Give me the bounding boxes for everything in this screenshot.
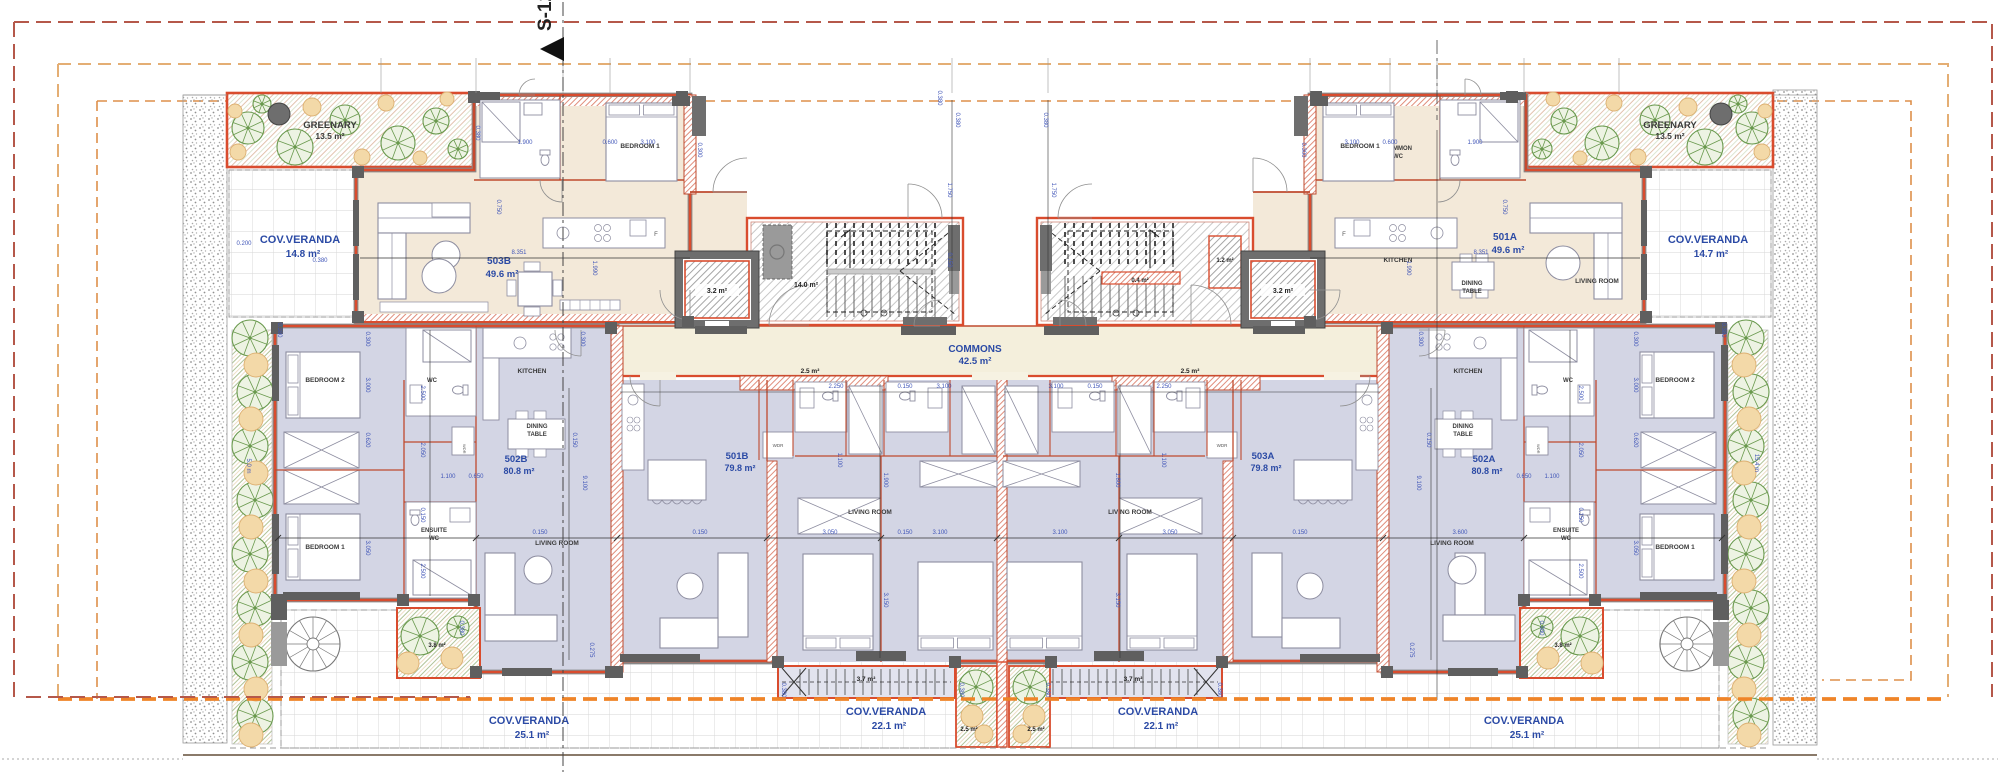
svg-text:1.900: 1.900 bbox=[1467, 140, 1483, 146]
svg-text:8.351: 8.351 bbox=[511, 250, 527, 256]
svg-text:2.500: 2.500 bbox=[1577, 563, 1583, 579]
svg-text:0.620: 0.620 bbox=[364, 432, 370, 448]
svg-text:80.8 m²: 80.8 m² bbox=[503, 466, 534, 476]
svg-text:0.380: 0.380 bbox=[1042, 112, 1048, 128]
svg-text:1.750: 1.750 bbox=[1050, 182, 1056, 198]
svg-text:1.2 m²: 1.2 m² bbox=[1216, 257, 1233, 264]
svg-text:0.380: 0.380 bbox=[1216, 682, 1222, 698]
svg-text:2.5 m²: 2.5 m² bbox=[960, 726, 977, 733]
svg-text:0.300: 0.300 bbox=[579, 331, 585, 347]
svg-text:0.600: 0.600 bbox=[1382, 140, 1398, 146]
svg-text:LIVING ROOM: LIVING ROOM bbox=[848, 509, 892, 516]
svg-text:0.300: 0.300 bbox=[1632, 331, 1638, 347]
svg-text:0.150: 0.150 bbox=[419, 507, 425, 523]
svg-text:0.150: 0.150 bbox=[1087, 384, 1103, 390]
svg-text:0.380: 0.380 bbox=[276, 322, 282, 338]
svg-text:2.050: 2.050 bbox=[419, 442, 425, 458]
svg-text:COV.VERANDA: COV.VERANDA bbox=[489, 715, 569, 727]
svg-text:COV.VERANDA: COV.VERANDA bbox=[1484, 715, 1564, 727]
svg-text:0.150: 0.150 bbox=[1577, 507, 1583, 523]
svg-text:0.150: 0.150 bbox=[571, 432, 577, 448]
svg-text:3.050: 3.050 bbox=[822, 530, 838, 536]
svg-text:COV.VERANDA: COV.VERANDA bbox=[1668, 234, 1748, 246]
svg-text:2.050: 2.050 bbox=[1577, 442, 1583, 458]
svg-text:22.1 m²: 22.1 m² bbox=[1144, 721, 1179, 732]
svg-text:501B: 501B bbox=[726, 451, 749, 462]
svg-text:ENSUITE: ENSUITE bbox=[1553, 528, 1579, 534]
svg-text:79.8 m²: 79.8 m² bbox=[1250, 463, 1281, 473]
svg-text:15.4 m: 15.4 m bbox=[1753, 454, 1759, 472]
svg-text:WDR: WDR bbox=[773, 443, 784, 448]
svg-text:0.380: 0.380 bbox=[1044, 682, 1050, 698]
svg-text:0.300: 0.300 bbox=[364, 331, 370, 347]
svg-text:13.5 m²: 13.5 m² bbox=[1655, 131, 1684, 141]
svg-text:KITCHEN: KITCHEN bbox=[518, 368, 547, 375]
svg-text:0.750: 0.750 bbox=[1501, 199, 1507, 215]
svg-text:2.250: 2.250 bbox=[1156, 384, 1172, 390]
svg-text:BEDROOM 2: BEDROOM 2 bbox=[1655, 377, 1695, 384]
svg-text:COV.VERANDA: COV.VERANDA bbox=[846, 706, 926, 718]
svg-text:1.100: 1.100 bbox=[1544, 474, 1560, 480]
svg-text:0.650: 0.650 bbox=[468, 474, 484, 480]
svg-text:3.150: 3.150 bbox=[882, 592, 888, 608]
svg-text:1.900: 1.900 bbox=[882, 472, 888, 488]
svg-text:WC: WC bbox=[429, 536, 440, 542]
svg-text:GREENARY: GREENARY bbox=[1643, 120, 1697, 131]
svg-text:WC: WC bbox=[1563, 378, 1574, 384]
svg-text:TABLE: TABLE bbox=[527, 432, 547, 438]
svg-text:3.050: 3.050 bbox=[1632, 540, 1638, 556]
svg-text:WDR: WDR bbox=[1217, 443, 1228, 448]
svg-text:2.5 m²: 2.5 m² bbox=[801, 368, 821, 375]
svg-text:0.300: 0.300 bbox=[1300, 142, 1306, 158]
svg-text:14.7 m²: 14.7 m² bbox=[1694, 249, 1729, 260]
svg-text:WDR: WDR bbox=[462, 444, 467, 454]
svg-text:1.100: 1.100 bbox=[836, 452, 842, 468]
svg-text:LIVING ROOM: LIVING ROOM bbox=[1108, 509, 1152, 516]
svg-text:0.300: 0.300 bbox=[1417, 331, 1423, 347]
svg-text:9.100: 9.100 bbox=[581, 475, 587, 491]
svg-text:80.8 m²: 80.8 m² bbox=[1471, 466, 1502, 476]
svg-text:COV.VERANDA: COV.VERANDA bbox=[1118, 706, 1198, 718]
svg-text:3.100: 3.100 bbox=[640, 140, 656, 146]
svg-text:25.1 m²: 25.1 m² bbox=[1510, 730, 1545, 741]
svg-text:2.5 m²: 2.5 m² bbox=[1027, 726, 1044, 733]
svg-text:DINING: DINING bbox=[527, 424, 548, 430]
svg-text:3.2 m²: 3.2 m² bbox=[1273, 288, 1294, 295]
svg-text:3.100: 3.100 bbox=[936, 384, 952, 390]
svg-text:1.100: 1.100 bbox=[440, 474, 456, 480]
svg-text:0.380: 0.380 bbox=[958, 682, 964, 698]
svg-text:DINING: DINING bbox=[1453, 424, 1474, 430]
svg-text:0.275: 0.275 bbox=[1408, 642, 1414, 658]
svg-text:F: F bbox=[654, 232, 658, 238]
svg-text:0.380: 0.380 bbox=[1538, 620, 1544, 636]
svg-text:0.380: 0.380 bbox=[1720, 322, 1726, 338]
svg-text:3.7 m²: 3.7 m² bbox=[1124, 676, 1144, 683]
svg-text:3.100: 3.100 bbox=[932, 530, 948, 536]
svg-text:LIVING ROOM: LIVING ROOM bbox=[535, 540, 579, 547]
svg-text:0.380: 0.380 bbox=[936, 90, 942, 106]
svg-text:8.351: 8.351 bbox=[1473, 250, 1489, 256]
svg-text:503A: 503A bbox=[1252, 451, 1275, 462]
svg-text:2.250: 2.250 bbox=[828, 384, 844, 390]
svg-text:3.100: 3.100 bbox=[1048, 384, 1064, 390]
svg-text:1.990: 1.990 bbox=[1405, 260, 1411, 276]
svg-text:0.150: 0.150 bbox=[946, 252, 952, 268]
svg-text:1.990: 1.990 bbox=[591, 260, 597, 276]
svg-text:3.600: 3.600 bbox=[1452, 530, 1468, 536]
svg-text:3.000: 3.000 bbox=[1632, 377, 1638, 393]
svg-text:13.5 m²: 13.5 m² bbox=[315, 131, 344, 141]
svg-text:22.1 m²: 22.1 m² bbox=[872, 721, 907, 732]
svg-text:2.5 m²: 2.5 m² bbox=[1181, 368, 1201, 375]
svg-text:F: F bbox=[1342, 232, 1346, 238]
svg-text:0.380: 0.380 bbox=[458, 620, 464, 636]
svg-text:3.050: 3.050 bbox=[364, 540, 370, 556]
svg-text:3.050: 3.050 bbox=[1162, 530, 1178, 536]
svg-text:BEDROOM 1: BEDROOM 1 bbox=[1655, 544, 1695, 551]
svg-text:79.8 m²: 79.8 m² bbox=[724, 463, 755, 473]
svg-text:3.8 m²: 3.8 m² bbox=[428, 642, 445, 649]
svg-text:3.8 m²: 3.8 m² bbox=[1554, 642, 1571, 649]
svg-text:KITCHEN: KITCHEN bbox=[1454, 368, 1483, 375]
svg-text:9.100: 9.100 bbox=[1415, 475, 1421, 491]
svg-text:BEDROOM 2: BEDROOM 2 bbox=[305, 377, 345, 384]
svg-text:2.500: 2.500 bbox=[419, 563, 425, 579]
svg-text:502B: 502B bbox=[505, 454, 528, 465]
svg-text:3.150: 3.150 bbox=[1114, 592, 1120, 608]
svg-text:0.750: 0.750 bbox=[495, 199, 501, 215]
svg-text:LIVING ROOM: LIVING ROOM bbox=[1575, 278, 1619, 285]
svg-text:42.5 m²: 42.5 m² bbox=[959, 356, 992, 367]
svg-text:1.750: 1.750 bbox=[946, 182, 952, 198]
svg-text:0.380: 0.380 bbox=[954, 112, 960, 128]
svg-text:1.800: 1.800 bbox=[1114, 472, 1120, 488]
svg-text:0.620: 0.620 bbox=[1632, 432, 1638, 448]
svg-text:49.6 m²: 49.6 m² bbox=[486, 269, 519, 280]
svg-text:1.100: 1.100 bbox=[1160, 452, 1166, 468]
svg-text:0.380: 0.380 bbox=[474, 125, 480, 141]
svg-text:WDR: WDR bbox=[1536, 444, 1541, 454]
svg-text:2.500: 2.500 bbox=[419, 385, 425, 401]
svg-text:COMMONS: COMMONS bbox=[948, 344, 1002, 355]
svg-text:GREENARY: GREENARY bbox=[303, 120, 357, 131]
svg-text:0.150: 0.150 bbox=[897, 530, 913, 536]
svg-text:3.100: 3.100 bbox=[1344, 140, 1360, 146]
svg-text:0.150: 0.150 bbox=[1425, 432, 1431, 448]
svg-text:0.150: 0.150 bbox=[1292, 530, 1308, 536]
svg-text:0.380: 0.380 bbox=[312, 258, 328, 264]
svg-text:3.2 m²: 3.2 m² bbox=[707, 288, 728, 295]
svg-text:0.650: 0.650 bbox=[1516, 474, 1532, 480]
svg-text:COV.VERANDA: COV.VERANDA bbox=[260, 234, 340, 246]
svg-text:5.0 m: 5.0 m bbox=[245, 458, 251, 473]
svg-text:WC: WC bbox=[427, 378, 438, 384]
svg-text:3.000: 3.000 bbox=[364, 377, 370, 393]
svg-text:0.150: 0.150 bbox=[897, 384, 913, 390]
svg-text:DINING: DINING bbox=[1462, 281, 1483, 287]
svg-text:0.150: 0.150 bbox=[532, 530, 548, 536]
svg-text:BEDROOM 1: BEDROOM 1 bbox=[305, 544, 345, 551]
svg-text:0.275: 0.275 bbox=[588, 642, 594, 658]
svg-text:TABLE: TABLE bbox=[1462, 289, 1482, 295]
svg-text:ENSUITE: ENSUITE bbox=[421, 528, 447, 534]
svg-text:3.7 m²: 3.7 m² bbox=[857, 676, 877, 683]
svg-text:0.200: 0.200 bbox=[236, 241, 252, 247]
svg-text:14.0 m²: 14.0 m² bbox=[794, 282, 819, 289]
svg-text:25.1 m²: 25.1 m² bbox=[515, 730, 550, 741]
svg-text:0.4 m²: 0.4 m² bbox=[1131, 277, 1148, 284]
svg-text:0.380: 0.380 bbox=[780, 682, 786, 698]
svg-text:1.900: 1.900 bbox=[517, 140, 533, 146]
svg-text:S-12: S-12 bbox=[535, 0, 556, 31]
svg-text:2.500: 2.500 bbox=[1577, 385, 1583, 401]
svg-text:501A: 501A bbox=[1493, 232, 1517, 243]
svg-text:0.150: 0.150 bbox=[692, 530, 708, 536]
svg-text:0.600: 0.600 bbox=[602, 140, 618, 146]
svg-text:3.100: 3.100 bbox=[1052, 530, 1068, 536]
svg-text:502A: 502A bbox=[1473, 454, 1496, 465]
svg-text:WC: WC bbox=[1393, 154, 1404, 160]
svg-text:TABLE: TABLE bbox=[1453, 432, 1473, 438]
svg-text:0.300: 0.300 bbox=[696, 142, 702, 158]
svg-text:49.6 m²: 49.6 m² bbox=[1492, 245, 1525, 256]
